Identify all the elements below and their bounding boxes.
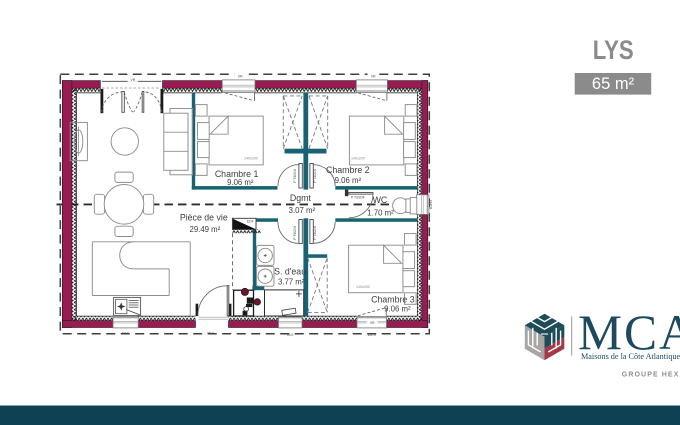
svg-text:GROUPE HEXAŌM: GROUPE HEXAŌM [622,370,680,378]
svg-text:Dgmt: Dgmt [290,193,312,203]
svg-text:P 73/204: P 73/204 [313,226,317,240]
svg-text:9.06 m²: 9.06 m² [335,176,362,185]
svg-text:Pièce de vie: Pièce de vie [180,212,228,222]
svg-text:VR: VR [130,78,135,82]
svg-text:WC: WC [373,195,388,205]
svg-text:VR: VR [371,74,376,78]
svg-text:1.70 m²: 1.70 m² [367,209,394,218]
svg-text:140x200: 140x200 [356,285,370,289]
svg-text:3.07 m²: 3.07 m² [289,206,316,215]
svg-text:VR: VR [370,321,375,325]
svg-text:29.49 m²: 29.49 m² [190,225,221,234]
svg-text:Maisons de la Côte Atlantique: Maisons de la Côte Atlantique [581,352,680,361]
svg-text:122.0: 122.0 [367,333,376,337]
svg-text:P 73/204: P 73/204 [293,169,297,183]
svg-text:98.0: 98.0 [207,331,214,335]
svg-text:92.0: 92.0 [287,333,294,337]
svg-text:60x95: 60x95 [429,200,433,209]
svg-text:LYS: LYS [593,35,634,65]
svg-text:140x200: 140x200 [244,157,258,161]
svg-text:P 73/204: P 73/204 [293,226,297,240]
svg-text:EDF: EDF [247,219,254,223]
svg-text:P 73/204: P 73/204 [351,195,365,199]
svg-text:65 m²: 65 m² [592,75,635,93]
svg-text:VR: VR [238,74,243,78]
svg-text:140x200: 140x200 [351,157,365,161]
svg-text:9.06 m²: 9.06 m² [384,304,411,313]
svg-text:S. d'eau: S. d'eau [274,267,306,277]
svg-text:P 73/204: P 73/204 [313,169,317,183]
svg-text:Chambre 2: Chambre 2 [326,165,370,175]
svg-text:9.06 m²: 9.06 m² [227,178,254,187]
svg-text:Chambre 3: Chambre 3 [371,295,415,305]
svg-text:92.0: 92.0 [122,331,129,335]
svg-text:3.77 m²: 3.77 m² [278,277,305,286]
